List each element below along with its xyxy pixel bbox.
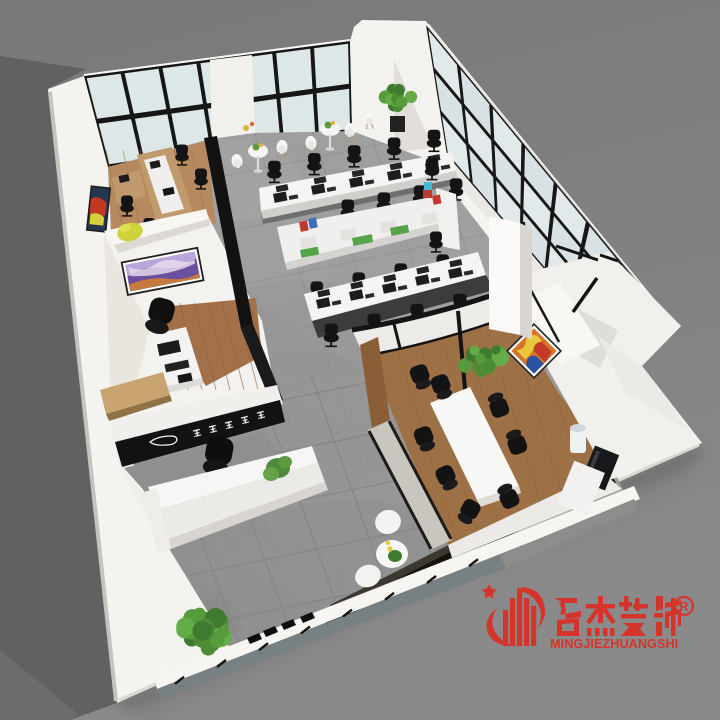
svg-text:MINGJIEZHUANGSHI: MINGJIEZHUANGSHI (550, 637, 678, 651)
svg-text:R: R (680, 600, 689, 614)
